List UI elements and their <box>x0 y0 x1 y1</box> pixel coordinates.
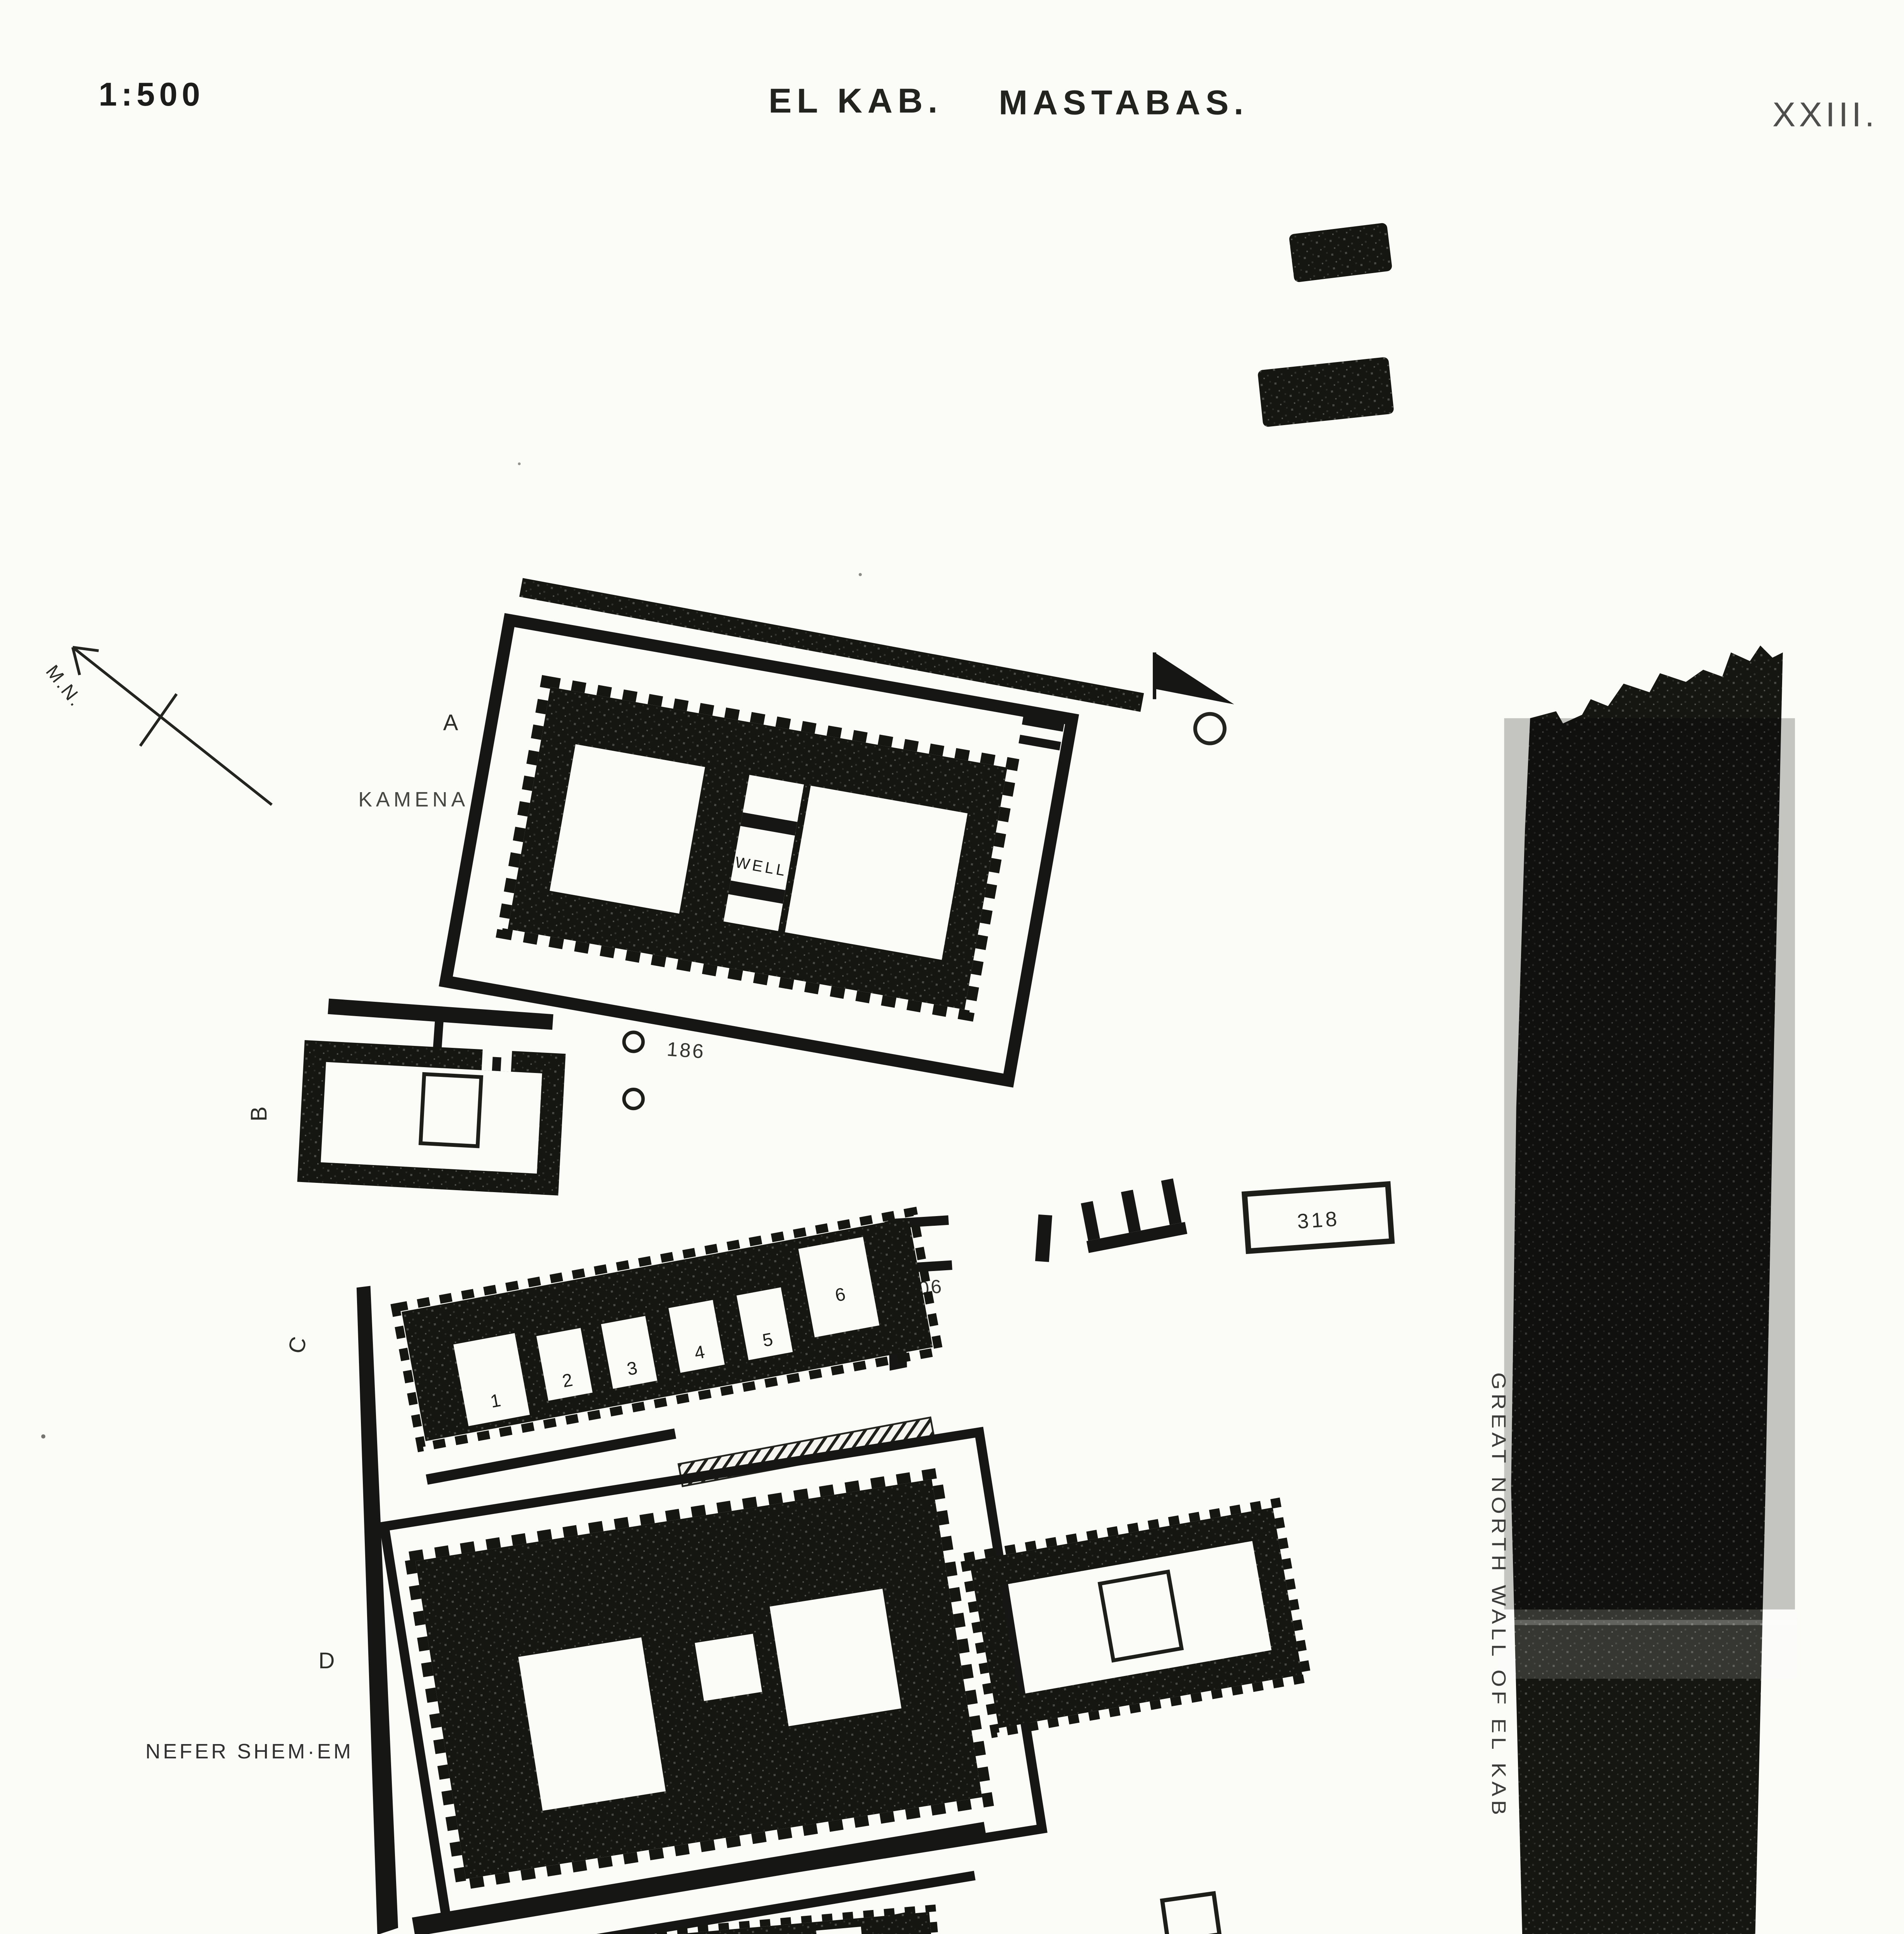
label-d: D <box>318 1648 335 1673</box>
scan-seam-line <box>1499 1620 1797 1625</box>
label-kamena: KAMENA <box>358 788 469 811</box>
north-arrow-shaft <box>73 647 272 805</box>
structure-bar <box>1035 1215 1052 1262</box>
mastaba-a-group: WELL <box>446 620 1072 1081</box>
plate-title-subject: MASTABAS. <box>999 83 1249 121</box>
shaft-circle-a <box>1195 714 1225 743</box>
north-arrow-label: M.N. <box>42 661 87 711</box>
plate-scale: 1:500 <box>99 76 204 113</box>
plate-page: 1:500 EL KAB. MASTABAS. XXIII. M.N. WELL… <box>0 0 1904 1934</box>
great-north-wall-dark-top <box>1504 718 1795 1609</box>
north-arrow <box>73 647 272 805</box>
scan-speck-4 <box>518 463 521 465</box>
west-enclosure-wall <box>357 1286 398 1934</box>
marker-318-label: 318 <box>1296 1207 1340 1234</box>
mastaba-d-room-2 <box>695 1634 762 1701</box>
mastaba-a-east-room <box>785 786 967 960</box>
annex-group <box>964 1502 1307 1733</box>
marker-186-label: 186 <box>666 1037 706 1063</box>
north-arrow-tick <box>140 694 176 746</box>
survey-flag-mark <box>1155 653 1234 704</box>
wall-fragment-1 <box>1289 222 1392 282</box>
scan-light-band <box>1499 1609 1797 1679</box>
shaft-circle-186a <box>624 1032 643 1051</box>
mastaba-a-corner-bar-2 <box>1019 735 1061 750</box>
scan-speck-1 <box>859 573 862 576</box>
label-b: B <box>246 1107 272 1122</box>
mastaba-d-room-3 <box>770 1589 902 1726</box>
label-a: A <box>443 710 458 735</box>
label-nefer-shem-em: NEFER SHEM·EM <box>145 1740 354 1763</box>
mastaba-c-group: 1 2 3 4 5 6 <box>395 1212 938 1447</box>
shaft-circle-186b <box>624 1090 643 1109</box>
structure-triple-prong <box>1078 1178 1187 1253</box>
wall-fragment-2 <box>1257 357 1394 427</box>
annex-pit-square <box>1100 1572 1181 1660</box>
scan-speck-2 <box>41 1434 45 1439</box>
mastaba-b-entrance-jamb <box>492 1057 501 1071</box>
plate-number: XXIII. <box>1772 95 1878 134</box>
mastaba-b-group <box>297 1037 566 1196</box>
mastaba-d-room-1 <box>518 1637 666 1811</box>
label-c: C <box>283 1334 312 1356</box>
plan-canvas: 1:500 EL KAB. MASTABAS. XXIII. M.N. WELL… <box>0 0 1904 1934</box>
marker-318-box: 318 <box>1244 1184 1392 1251</box>
mastaba-a-west-room <box>550 744 705 914</box>
mastaba-d-body <box>415 1479 982 1879</box>
mastaba-b-pit <box>420 1074 481 1146</box>
pit-square-1 <box>1162 1893 1220 1934</box>
mastaba-a-detached-north-wall <box>519 578 1144 712</box>
great-north-wall-label: GREAT NORTH WALL OF EL KAB <box>1488 1372 1510 1819</box>
mastaba-d-group <box>410 1473 988 1885</box>
plate-title-site: EL KAB. <box>769 81 943 120</box>
